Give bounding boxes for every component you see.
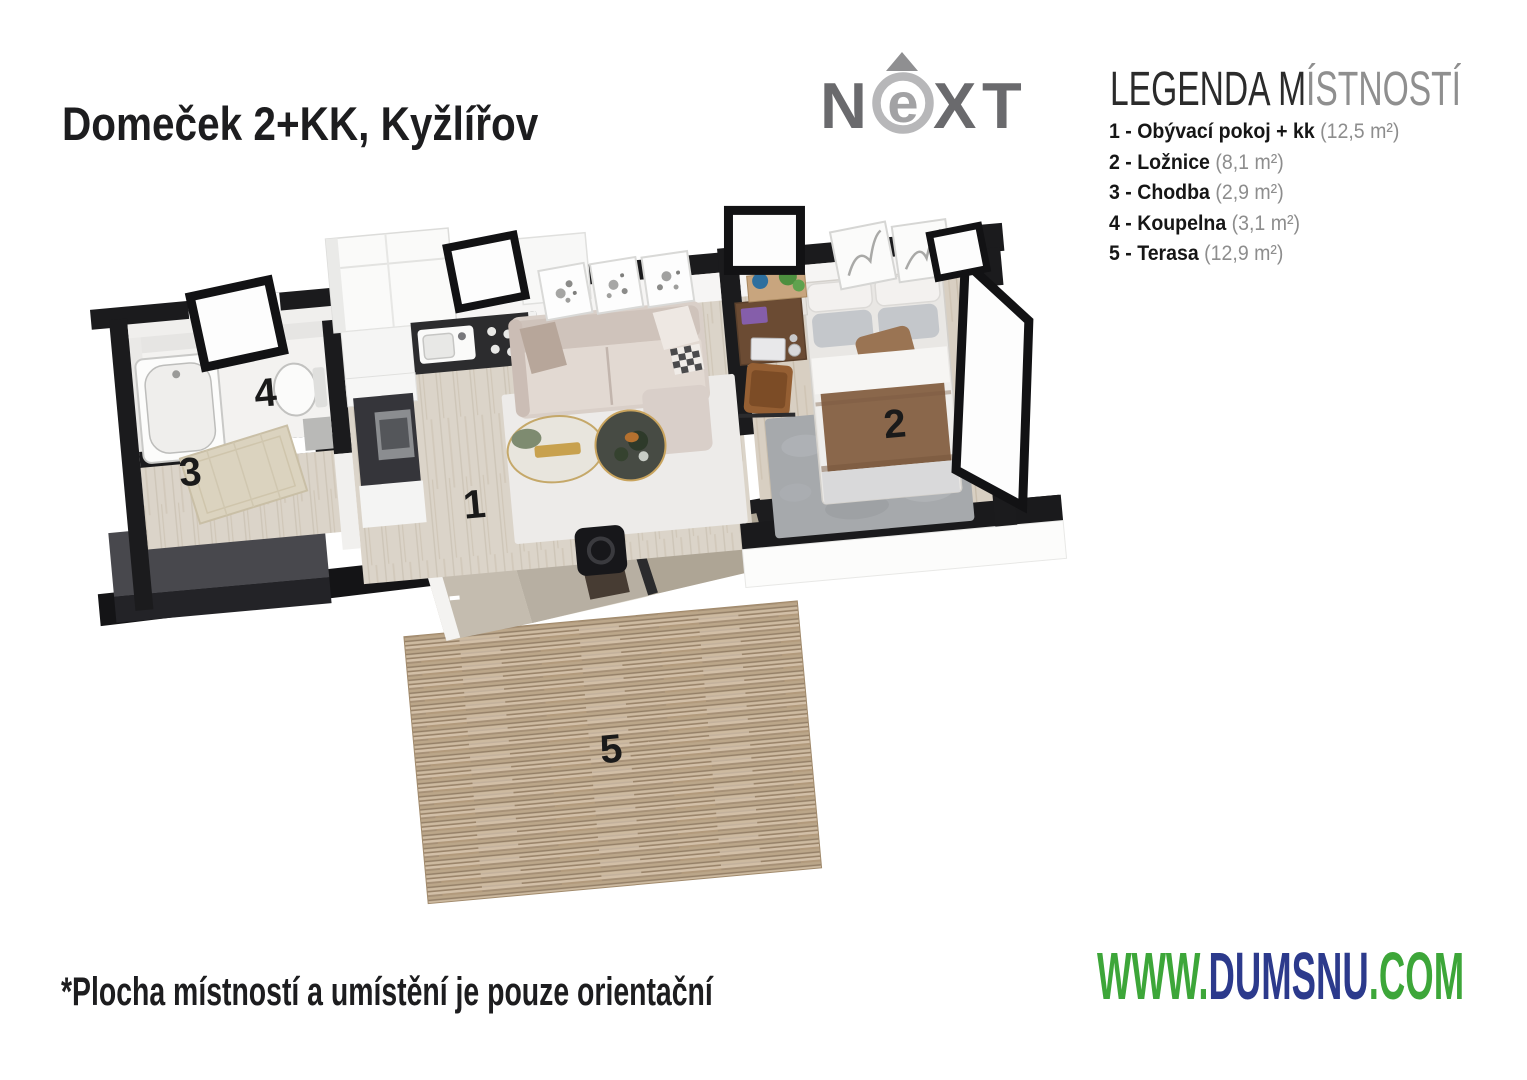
svg-text:1: 1: [461, 482, 487, 528]
svg-text:2: 2: [882, 401, 908, 447]
svg-text:5: 5: [598, 726, 624, 772]
svg-text:3: 3: [177, 449, 203, 495]
